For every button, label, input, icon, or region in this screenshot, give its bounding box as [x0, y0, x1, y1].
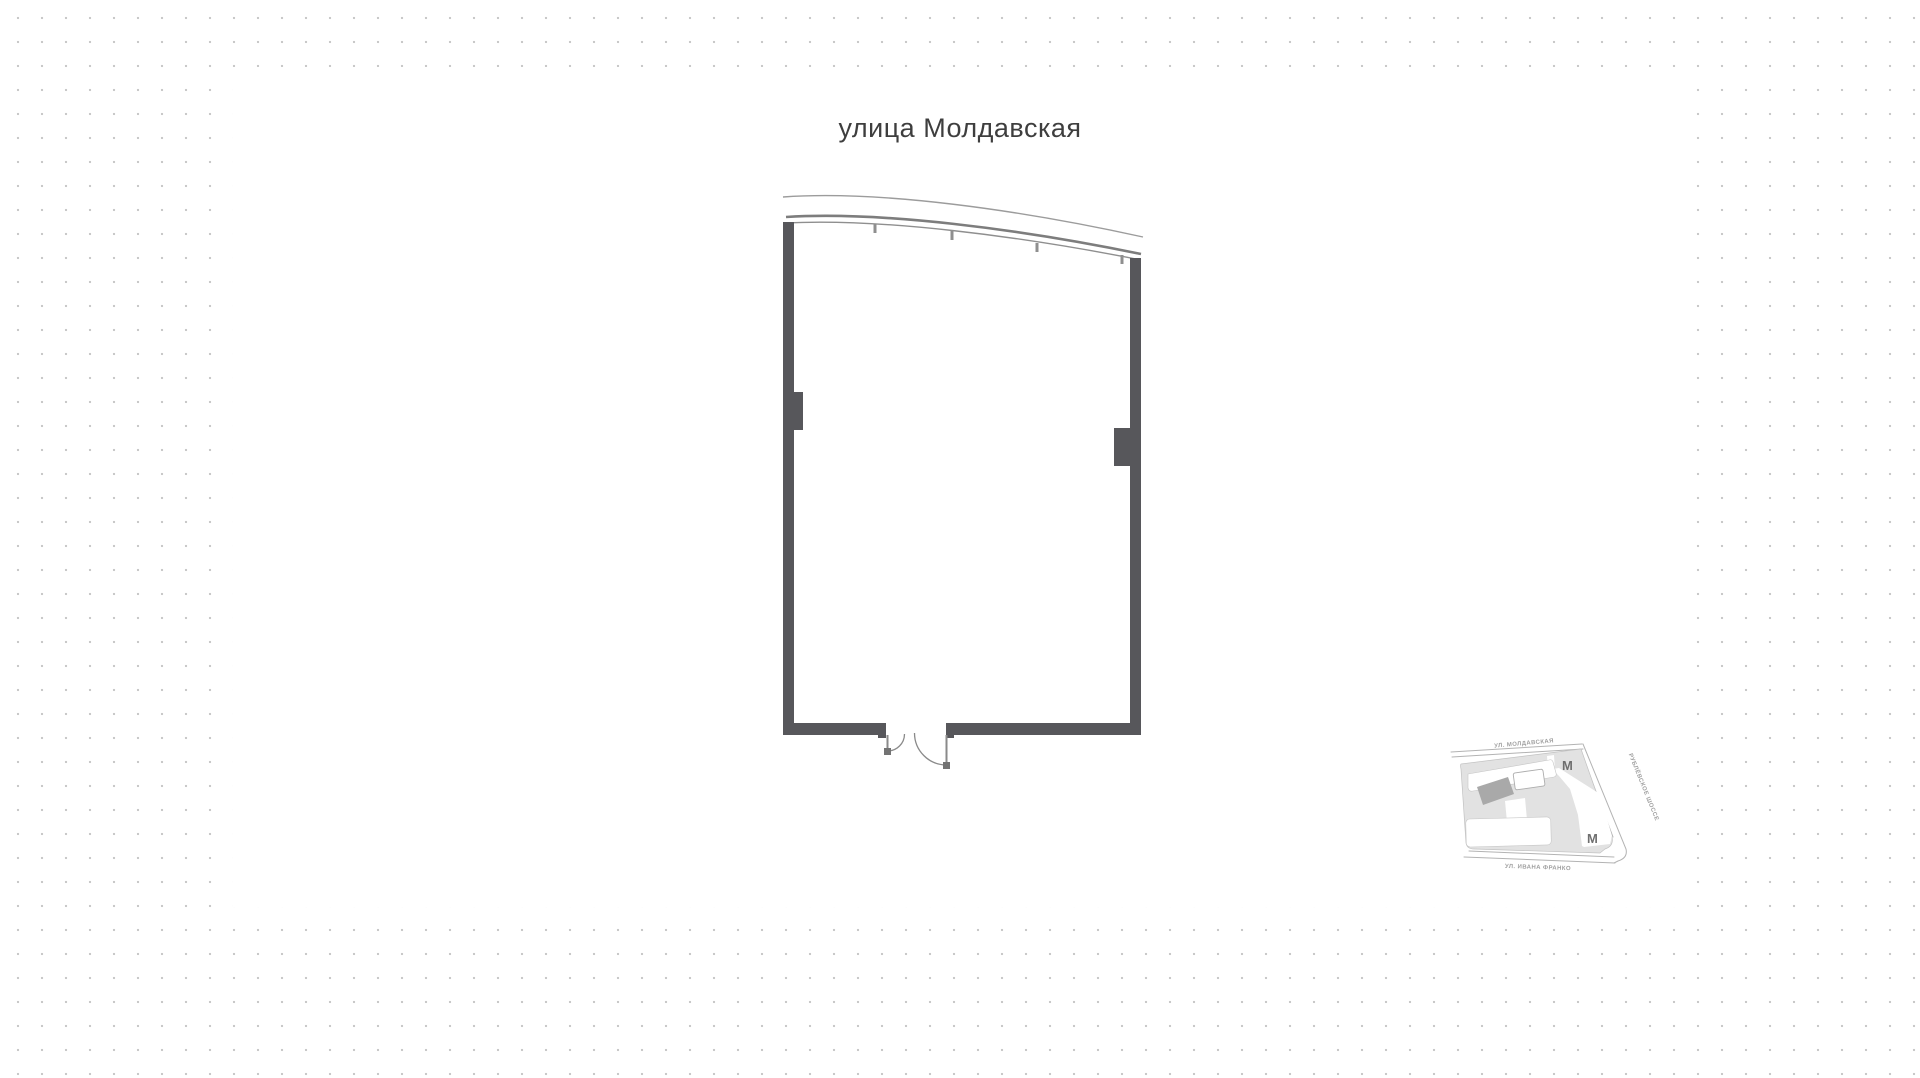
street-title: улица Молдавская [0, 113, 1920, 144]
left-wall-pilaster [783, 392, 803, 430]
door-jamb-step-left [878, 735, 886, 738]
facade-glazing [783, 196, 1143, 264]
minimap-street-label-ivana-franko: УЛ. ИВАНА ФРАНКО [1505, 864, 1571, 872]
entrance-door [884, 733, 950, 769]
inner-courtyard-lower [1466, 817, 1552, 847]
bottom-wall-right-segment [946, 723, 1141, 735]
floor-plan [760, 180, 1180, 800]
mullion-tick [1121, 255, 1124, 264]
minimap-street-label-rublyovskoye: РУБЛЁВСКОЕ ШОССЕ [1627, 752, 1660, 822]
location-minimap: УЛ. МОЛДАВСКАЯ РУБЛЁВСКОЕ ШОССЕ УЛ. ИВАН… [1448, 727, 1660, 885]
right-wall-pilaster [1114, 428, 1141, 466]
metro-icon: М [1587, 831, 1598, 846]
door-hinge-left [884, 748, 891, 755]
bottom-wall-left-segment [783, 723, 886, 735]
right-wall [1130, 258, 1141, 735]
glazing-curve-line [786, 216, 1141, 254]
walls [783, 222, 1141, 738]
mullion-tick [874, 224, 877, 233]
left-wall [783, 222, 794, 735]
metro-icon: М [1562, 758, 1573, 773]
door-hinge-right [943, 762, 950, 769]
mullion-tick [1036, 243, 1039, 252]
ivana-franko-road-outer-line [1464, 857, 1615, 863]
door-swing-arc-right [915, 733, 947, 765]
neighbor-building [1513, 769, 1545, 790]
mullion-tick [951, 231, 954, 240]
glazing-inner-line [786, 222, 1141, 260]
